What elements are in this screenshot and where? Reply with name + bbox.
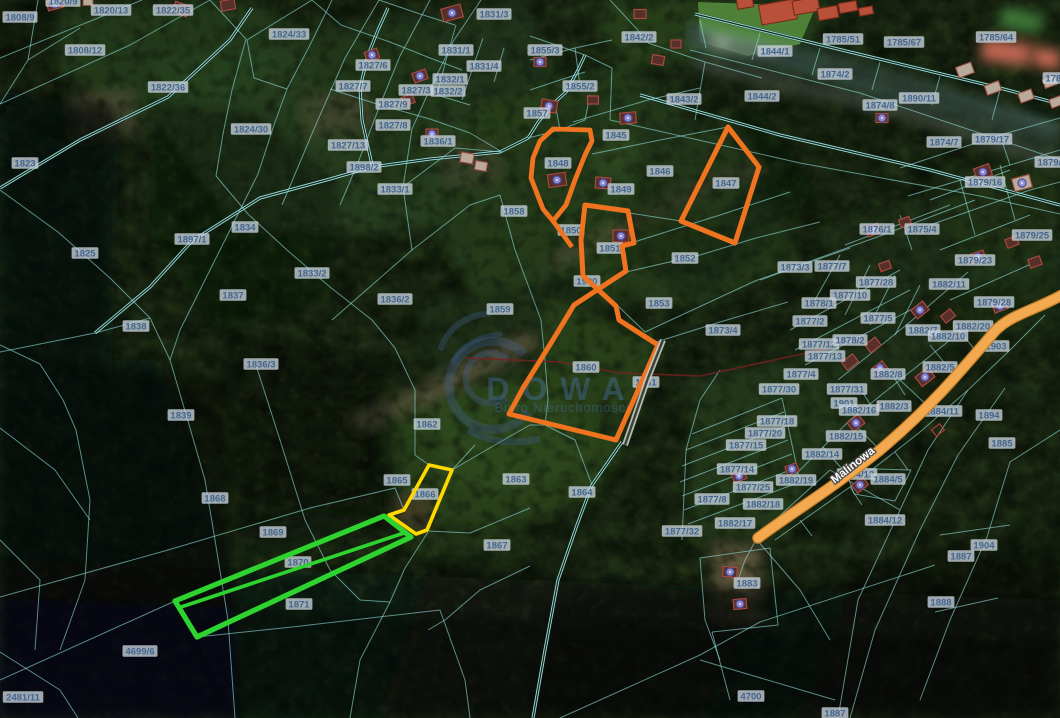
svg-text:1832/1: 1832/1	[435, 74, 465, 85]
svg-text:1837: 1837	[222, 290, 243, 301]
svg-text:1904: 1904	[973, 540, 995, 551]
svg-text:1858: 1858	[503, 206, 524, 217]
svg-text:1827/9: 1827/9	[378, 99, 407, 110]
svg-text:1878/2: 1878/2	[835, 335, 864, 346]
svg-text:1832/2: 1832/2	[433, 86, 462, 97]
svg-text:1871: 1871	[288, 599, 310, 610]
svg-text:1785/64: 1785/64	[979, 32, 1014, 43]
svg-text:1833/1: 1833/1	[380, 184, 410, 195]
svg-text:1877/28: 1877/28	[859, 277, 893, 288]
svg-text:1859: 1859	[489, 304, 510, 315]
svg-text:1831/4: 1831/4	[469, 61, 499, 72]
svg-text:1878/1: 1878/1	[804, 298, 834, 309]
svg-text:1877/13: 1877/13	[808, 351, 842, 362]
svg-text:1855/2: 1855/2	[565, 81, 594, 92]
svg-text:1785: 1785	[1045, 73, 1060, 84]
svg-text:1820/9: 1820/9	[48, 0, 77, 7]
svg-text:1822/35: 1822/35	[156, 5, 191, 16]
svg-text:1831/1: 1831/1	[441, 45, 471, 56]
svg-text:4700: 4700	[740, 691, 761, 702]
svg-text:1844/2: 1844/2	[747, 91, 776, 102]
svg-text:1860: 1860	[575, 362, 596, 373]
svg-text:1785/51: 1785/51	[826, 34, 861, 45]
svg-text:1897/1: 1897/1	[177, 234, 207, 245]
svg-text:1827/3: 1827/3	[401, 85, 430, 96]
svg-text:1898/2: 1898/2	[349, 162, 378, 173]
svg-text:1882/15: 1882/15	[829, 431, 864, 442]
svg-text:1877/4: 1877/4	[786, 369, 816, 380]
svg-text:1877/12: 1877/12	[802, 339, 836, 350]
svg-text:1882/16: 1882/16	[842, 405, 876, 416]
svg-text:1873/3: 1873/3	[780, 262, 809, 273]
svg-text:1882/18: 1882/18	[746, 499, 780, 510]
svg-text:1879/25: 1879/25	[1015, 230, 1050, 241]
svg-text:1851: 1851	[599, 243, 621, 254]
svg-text:1876/1: 1876/1	[862, 224, 892, 235]
svg-text:1887: 1887	[950, 551, 971, 562]
svg-text:1827/13: 1827/13	[331, 140, 365, 151]
svg-text:1846: 1846	[649, 166, 670, 177]
svg-text:1877/25: 1877/25	[736, 482, 771, 493]
svg-text:1822/36: 1822/36	[151, 82, 185, 93]
svg-text:1879/23: 1879/23	[958, 255, 992, 266]
svg-text:1882/11: 1882/11	[932, 279, 967, 290]
svg-text:1874/8: 1874/8	[865, 100, 894, 111]
svg-text:1882/10: 1882/10	[931, 331, 965, 342]
svg-text:1873/4: 1873/4	[708, 325, 738, 336]
svg-text:1882/8: 1882/8	[873, 369, 902, 380]
svg-text:1877/18: 1877/18	[760, 416, 794, 427]
svg-text:1831/3: 1831/3	[479, 9, 508, 20]
svg-text:1877/10: 1877/10	[833, 290, 867, 301]
svg-text:1865: 1865	[386, 475, 408, 486]
svg-text:1882/17: 1882/17	[718, 518, 752, 529]
svg-text:1874/7: 1874/7	[929, 137, 958, 148]
svg-text:1847: 1847	[715, 178, 736, 189]
svg-text:1824/33: 1824/33	[272, 29, 306, 40]
svg-text:1849: 1849	[610, 184, 631, 195]
svg-text:1884/12: 1884/12	[868, 515, 902, 526]
svg-text:1785/67: 1785/67	[887, 37, 921, 48]
svg-text:1879/2: 1879/2	[1037, 157, 1060, 168]
svg-text:1827/7: 1827/7	[338, 81, 367, 92]
svg-text:1877/30: 1877/30	[762, 384, 796, 395]
svg-text:1875/4: 1875/4	[907, 224, 937, 235]
svg-text:1877/2: 1877/2	[795, 316, 824, 327]
svg-text:1888: 1888	[930, 597, 951, 608]
svg-text:1877/15: 1877/15	[729, 440, 764, 451]
svg-text:1883: 1883	[736, 578, 757, 589]
svg-text:1882/14: 1882/14	[805, 449, 840, 460]
svg-text:1827/6: 1827/6	[358, 60, 387, 71]
svg-text:1887: 1887	[824, 708, 845, 718]
svg-text:1838: 1838	[125, 321, 146, 332]
svg-text:1836/3: 1836/3	[246, 359, 275, 370]
svg-text:1824/30: 1824/30	[234, 124, 268, 135]
svg-text:1879/28: 1879/28	[977, 297, 1011, 308]
svg-text:1894: 1894	[978, 410, 1000, 421]
svg-text:1845: 1845	[605, 130, 627, 141]
svg-text:1882/3: 1882/3	[879, 401, 908, 412]
svg-text:1882/5: 1882/5	[925, 362, 955, 373]
svg-text:1808/9: 1808/9	[5, 12, 34, 23]
svg-text:1864: 1864	[571, 487, 593, 498]
svg-text:1885: 1885	[991, 438, 1013, 449]
svg-text:1857: 1857	[526, 108, 547, 119]
svg-text:1823: 1823	[14, 158, 35, 169]
svg-text:1839: 1839	[170, 410, 191, 421]
svg-text:1874/2: 1874/2	[820, 69, 849, 80]
svg-text:1877/14: 1877/14	[720, 464, 755, 475]
svg-text:1853: 1853	[648, 298, 669, 309]
svg-text:1827/8: 1827/8	[378, 120, 407, 131]
svg-text:1852: 1852	[674, 253, 695, 264]
svg-text:1866: 1866	[414, 489, 435, 500]
svg-text:1855/3: 1855/3	[530, 45, 559, 56]
svg-text:1843/2: 1843/2	[669, 94, 698, 105]
svg-text:1879/17: 1879/17	[975, 134, 1009, 145]
svg-text:1825: 1825	[74, 248, 96, 259]
svg-text:1848: 1848	[547, 158, 568, 169]
svg-text:1863: 1863	[505, 474, 526, 485]
svg-text:1877/5: 1877/5	[863, 313, 893, 324]
svg-text:1877/32: 1877/32	[665, 526, 699, 537]
svg-text:1877/31: 1877/31	[830, 384, 865, 395]
svg-text:4699/6: 4699/6	[125, 646, 154, 657]
svg-text:1867: 1867	[486, 540, 507, 551]
svg-text:1836/1: 1836/1	[423, 136, 453, 147]
svg-text:1842/2: 1842/2	[624, 32, 653, 43]
svg-text:1862: 1862	[416, 419, 437, 430]
svg-text:1836/2: 1836/2	[380, 294, 409, 305]
svg-text:1884/5: 1884/5	[873, 474, 903, 485]
svg-text:1868: 1868	[204, 493, 225, 504]
svg-text:1869: 1869	[262, 527, 283, 538]
svg-text:1877/8: 1877/8	[697, 494, 726, 505]
svg-text:1834: 1834	[234, 222, 256, 233]
svg-text:2481/11: 2481/11	[6, 692, 41, 703]
svg-text:1820/13: 1820/13	[94, 5, 128, 16]
svg-text:1808/12: 1808/12	[68, 45, 102, 56]
svg-text:1877/20: 1877/20	[748, 428, 782, 439]
svg-text:1879/16: 1879/16	[968, 177, 1002, 188]
svg-text:1882/19: 1882/19	[779, 475, 813, 486]
svg-text:1844/1: 1844/1	[760, 46, 790, 57]
svg-text:1890/11: 1890/11	[902, 93, 937, 104]
svg-text:1877/7: 1877/7	[817, 261, 846, 272]
svg-text:1833/2: 1833/2	[297, 268, 326, 279]
